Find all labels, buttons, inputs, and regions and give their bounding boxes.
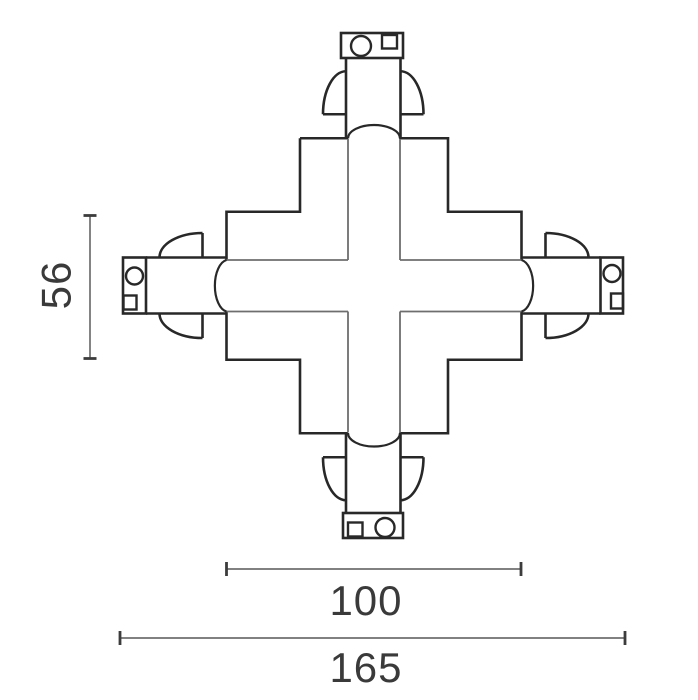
drawing-canvas: 56 100 165: [0, 0, 698, 700]
x-connector-technical-drawing: 56 100 165: [0, 0, 698, 700]
dimension-56-label: 56: [33, 261, 80, 310]
dimension-165-label: 165: [329, 644, 402, 691]
dimension-100-label: 100: [329, 577, 402, 624]
